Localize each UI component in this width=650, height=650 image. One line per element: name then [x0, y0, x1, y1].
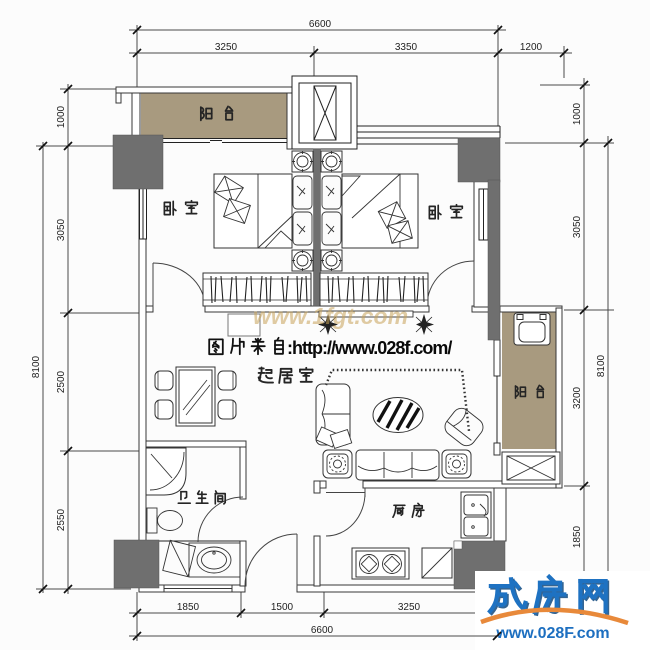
svg-text::http://www.028f.com/: :http://www.028f.com/	[287, 338, 452, 358]
svg-text:6600: 6600	[311, 625, 334, 636]
svg-text:1000: 1000	[56, 105, 67, 128]
svg-text:3350: 3350	[395, 42, 418, 53]
svg-text:8100: 8100	[31, 355, 42, 378]
svg-text:8100: 8100	[596, 354, 607, 377]
svg-text:3050: 3050	[56, 218, 67, 241]
svg-text:3250: 3250	[398, 602, 421, 613]
svg-text:www.028F.com: www.028F.com	[495, 625, 609, 642]
svg-text:2550: 2550	[56, 508, 67, 531]
svg-text:1850: 1850	[572, 525, 583, 548]
svg-text:6600: 6600	[309, 19, 332, 30]
svg-text:3200: 3200	[572, 386, 583, 409]
svg-text:1500: 1500	[271, 602, 294, 613]
svg-text:3250: 3250	[215, 42, 238, 53]
svg-text:www.1fgt.com: www.1fgt.com	[253, 303, 408, 329]
svg-text:1200: 1200	[520, 42, 543, 53]
svg-text:3050: 3050	[572, 215, 583, 238]
svg-text:1000: 1000	[572, 102, 583, 125]
svg-text:1850: 1850	[177, 602, 200, 613]
svg-text:2500: 2500	[56, 370, 67, 393]
